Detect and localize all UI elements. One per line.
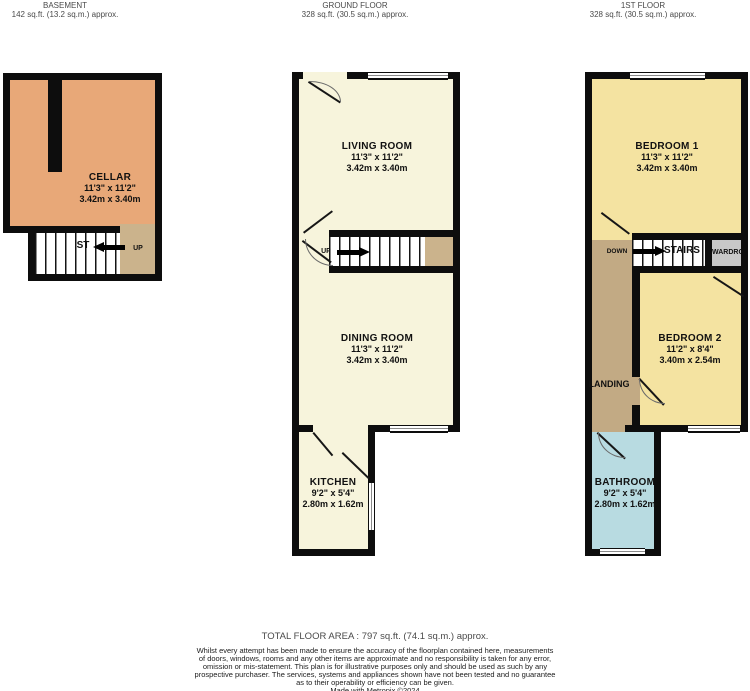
first-stairs-label: STAIRS — [652, 245, 712, 256]
front-door-opening — [303, 72, 347, 80]
metropix-credit: Made with Metropix ©2024 — [0, 687, 750, 691]
arrow-shaft — [103, 245, 125, 250]
wardrobe-label: WARDROBE — [712, 249, 741, 256]
dining-room-dims-imperial: 11'3" x 11'2" — [299, 344, 455, 355]
ground-floor-title: GROUND FLOOR — [255, 1, 455, 10]
ground-floor-area: 328 sq.ft. (30.5 sq.m.) approx. — [255, 10, 455, 19]
dining-room-label: DINING ROOM 11'3" x 11'2" 3.42m x 3.40m — [299, 333, 455, 366]
bedroom1-dims-imperial: 11'3" x 11'2" — [592, 152, 742, 163]
bathroom-name: BATHROOM — [592, 477, 658, 488]
first-stairs-wall-bottom — [632, 266, 741, 273]
first-floor-title: 1ST FLOOR — [543, 1, 743, 10]
bathroom-window — [600, 548, 645, 556]
cellar-dims-imperial: 11'3" x 11'2" — [40, 183, 180, 194]
arrow-shaft — [337, 250, 359, 255]
living-room-dims-metric: 3.42m x 3.40m — [299, 163, 455, 174]
dining-room-window — [390, 425, 448, 433]
basement-header: BASEMENT 142 sq.ft. (13.2 sq.m.) approx. — [0, 1, 130, 19]
cellar-label: CELLAR 11'3" x 11'2" 3.42m x 3.40m — [40, 172, 180, 205]
basement-area: 142 sq.ft. (13.2 sq.m.) approx. — [0, 10, 130, 19]
first-stairs-wall-top — [632, 233, 741, 240]
floorplan-canvas: BASEMENT 142 sq.ft. (13.2 sq.m.) approx.… — [0, 0, 750, 691]
first-floor-area: 328 sq.ft. (30.5 sq.m.) approx. — [543, 10, 743, 19]
first-floor-header: 1ST FLOOR 328 sq.ft. (30.5 sq.m.) approx… — [543, 1, 743, 19]
basement-stairs-label: ST — [70, 240, 96, 251]
bedroom2-label: BEDROOM 2 11'2" x 8'4" 3.40m x 2.54m — [617, 333, 750, 366]
basement-stairs-landing — [120, 233, 155, 274]
arrow-head — [359, 247, 370, 257]
basement-title: BASEMENT — [0, 1, 130, 10]
living-room-window — [368, 72, 448, 80]
basement-up-label: UP — [126, 245, 150, 252]
living-room-dims-imperial: 11'3" x 11'2" — [299, 152, 455, 163]
bedroom2-name: BEDROOM 2 — [617, 333, 750, 344]
kitchen-dims-metric: 2.80m x 1.62m — [294, 499, 372, 510]
bedroom2-dims-imperial: 11'2" x 8'4" — [617, 344, 750, 355]
landing-label: LANDING — [586, 379, 632, 389]
ground-stairs-wall-bottom — [329, 266, 453, 273]
kitchen-dims-imperial: 9'2" x 5'4" — [294, 488, 372, 499]
bedroom1-dims-metric: 3.42m x 3.40m — [592, 163, 742, 174]
dining-room-dims-metric: 3.42m x 3.40m — [299, 355, 455, 366]
bathroom-dims-imperial: 9'2" x 5'4" — [592, 488, 658, 499]
bathroom-label: BATHROOM 9'2" x 5'4" 2.80m x 1.62m — [592, 477, 658, 510]
basement-interior-wall — [48, 80, 62, 172]
wardrobe: WARDROBE — [712, 240, 741, 266]
bathroom-door-opening — [592, 425, 625, 432]
ground-up-label: UP — [316, 248, 336, 255]
ground-floor-header: GROUND FLOOR 328 sq.ft. (30.5 sq.m.) app… — [255, 1, 455, 19]
bedroom2-dims-metric: 3.40m x 2.54m — [617, 355, 750, 366]
basement-landing-opening — [120, 224, 155, 235]
dining-room-name: DINING ROOM — [299, 333, 455, 344]
dining-kitchen-opening — [313, 425, 368, 432]
basement-cellar-room — [3, 73, 162, 233]
ground-stairs-wall-top — [329, 230, 453, 237]
bedroom1-label: BEDROOM 1 11'3" x 11'2" 3.42m x 3.40m — [592, 141, 742, 174]
bedroom1-name: BEDROOM 1 — [592, 141, 742, 152]
ground-stairs-landing — [425, 237, 453, 266]
kitchen-label: KITCHEN 9'2" x 5'4" 2.80m x 1.62m — [294, 477, 372, 510]
first-down-label: DOWN — [601, 248, 633, 255]
cellar-name: CELLAR — [40, 172, 180, 183]
bedroom1-window — [630, 72, 705, 80]
bedroom2-window — [688, 425, 740, 433]
cellar-dims-metric: 3.42m x 3.40m — [40, 194, 180, 205]
living-room-name: LIVING ROOM — [299, 141, 455, 152]
living-room-label: LIVING ROOM 11'3" x 11'2" 3.42m x 3.40m — [299, 141, 455, 174]
bathroom-dims-metric: 2.80m x 1.62m — [592, 499, 658, 510]
total-floor-area: TOTAL FLOOR AREA : 797 sq.ft. (74.1 sq.m… — [0, 631, 750, 642]
kitchen-name: KITCHEN — [294, 477, 372, 488]
